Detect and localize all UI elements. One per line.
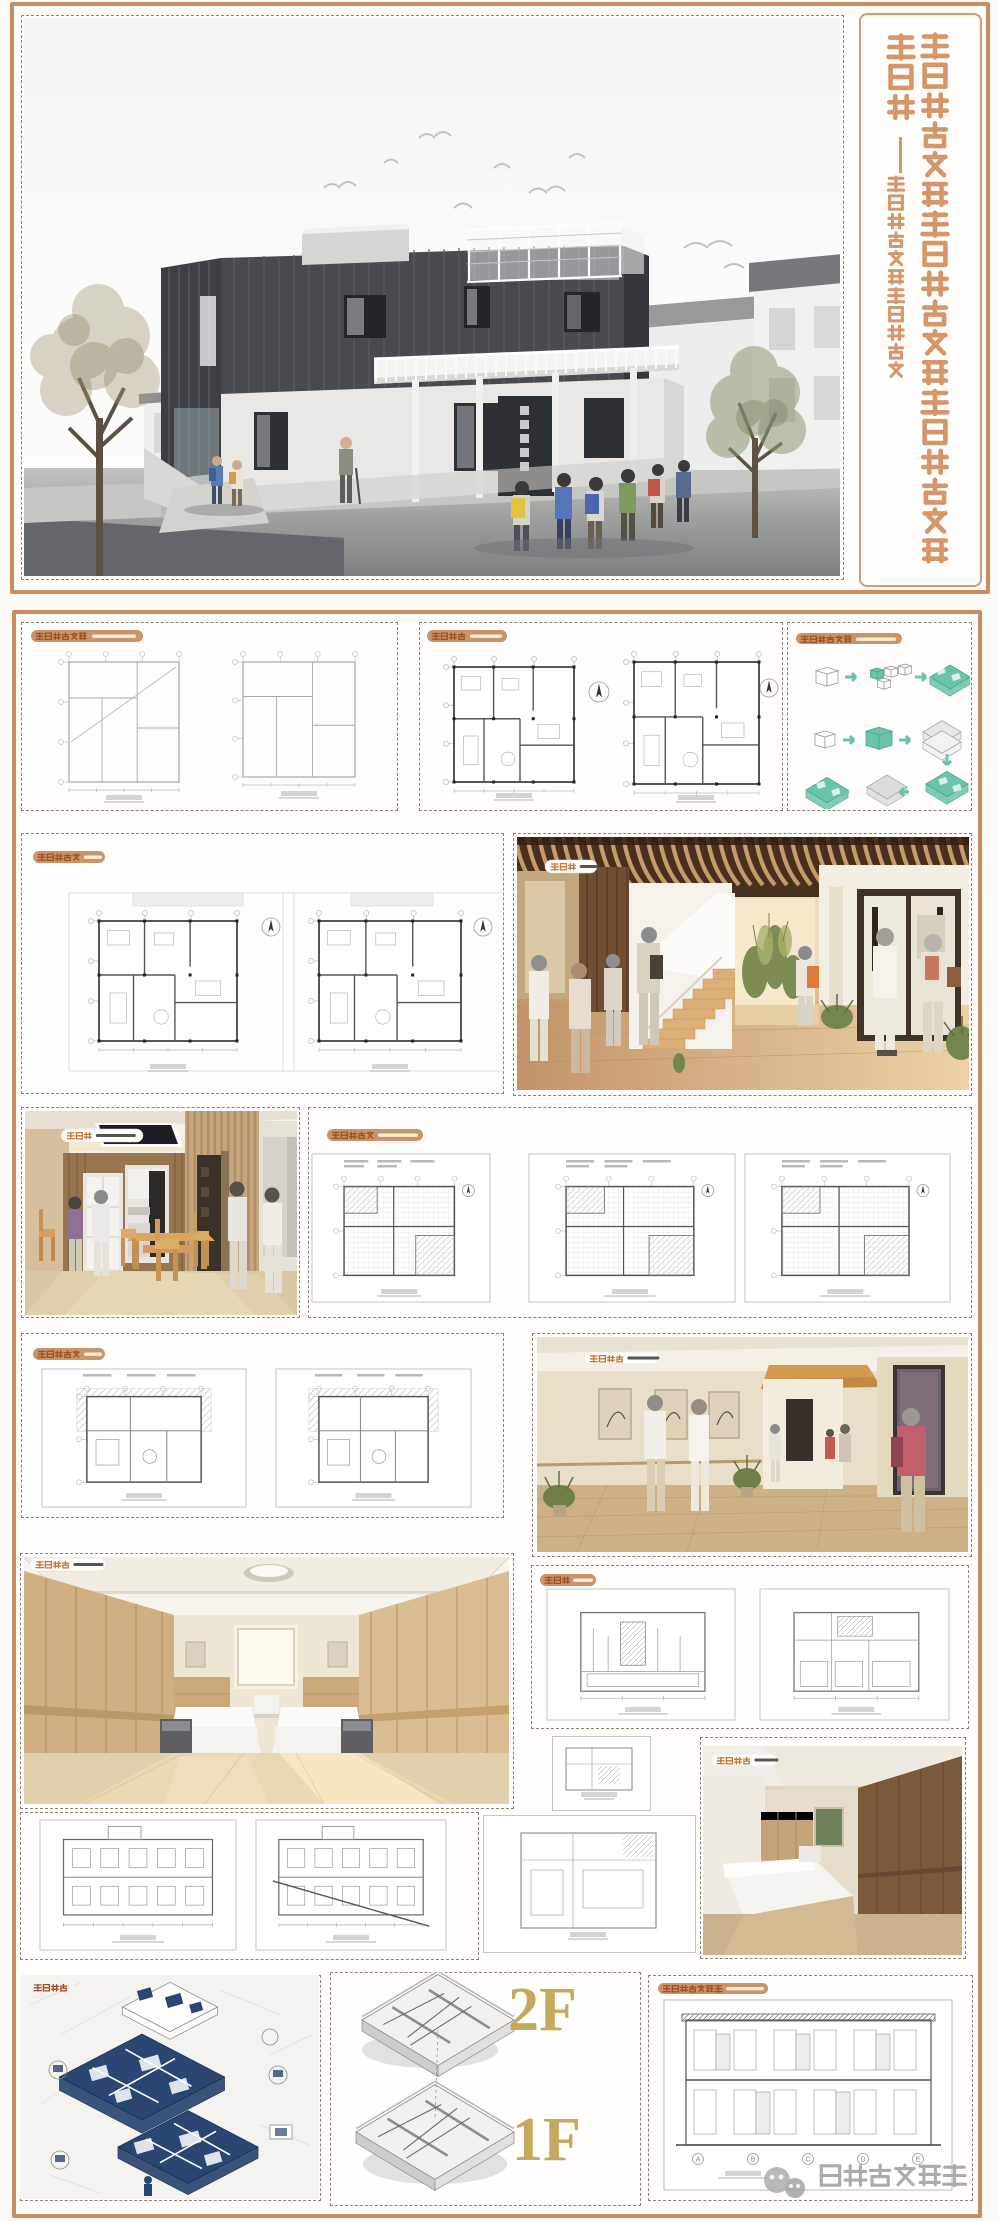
svg-text:A: A xyxy=(696,2157,701,2164)
